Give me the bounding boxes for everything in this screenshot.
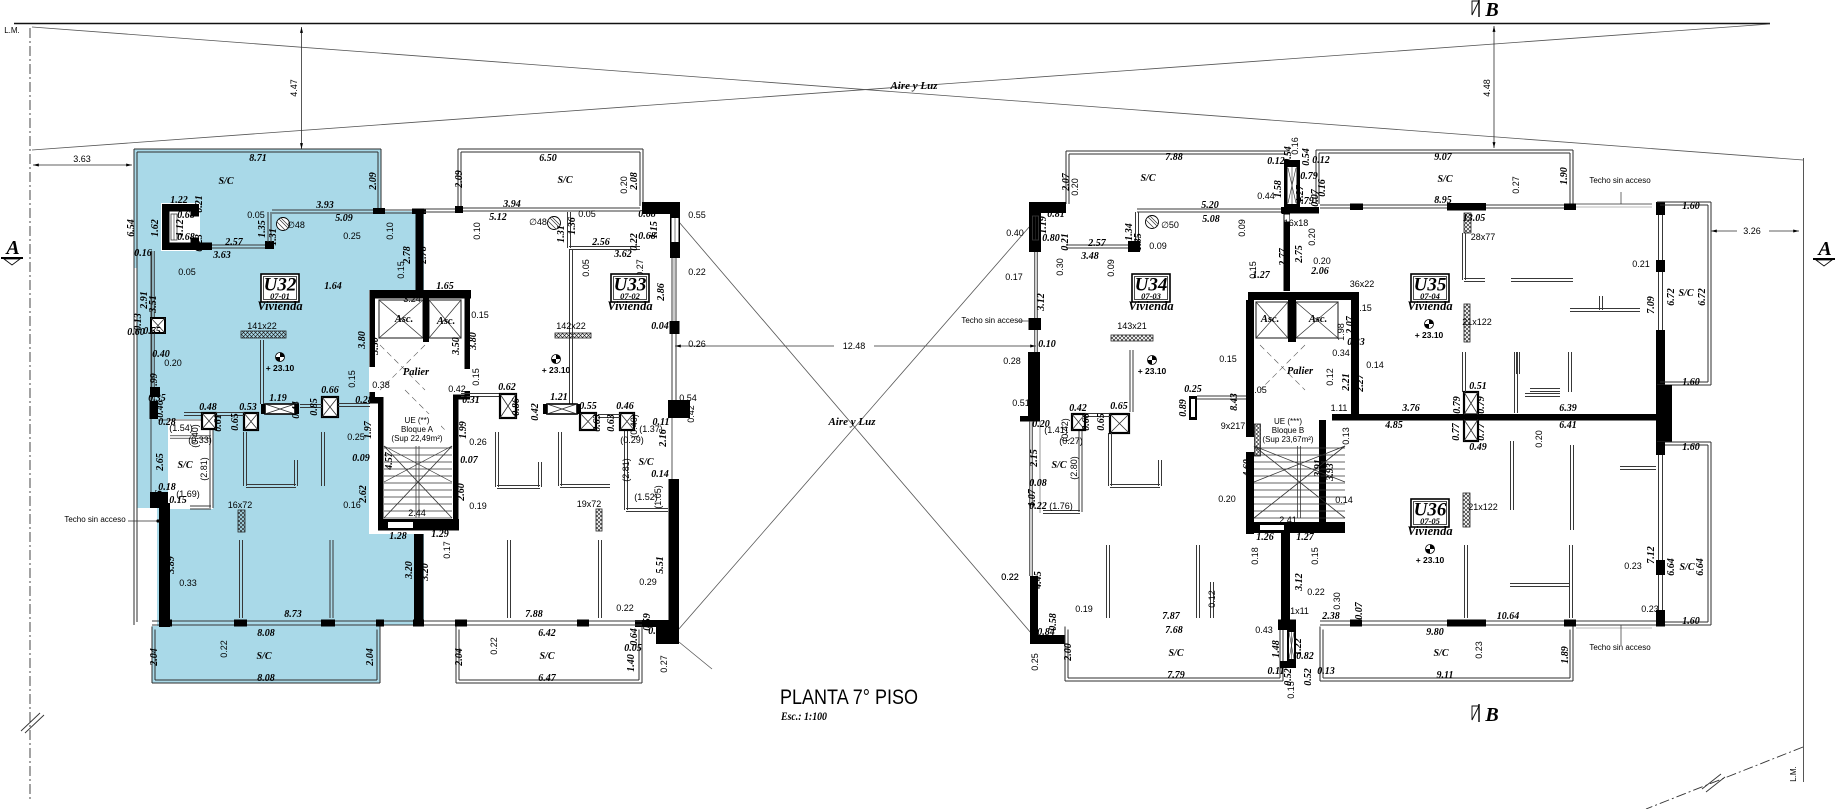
svg-text:2.75: 2.75 [1294, 245, 1305, 264]
svg-text:6.41: 6.41 [1559, 420, 1577, 431]
svg-text:1.60: 1.60 [1682, 201, 1700, 212]
svg-text:0.28: 0.28 [355, 395, 373, 406]
svg-text:L.M.: L.M. [4, 26, 20, 35]
svg-text:8.71: 8.71 [249, 153, 267, 164]
svg-text:1.64: 1.64 [324, 281, 342, 292]
svg-text:0.11: 0.11 [653, 417, 670, 428]
svg-text:1.31: 1.31 [268, 228, 279, 246]
svg-text:6.72: 6.72 [1697, 288, 1708, 306]
svg-text:(Sup 22,49m²): (Sup 22,49m²) [391, 434, 442, 443]
svg-text:+ 23.10: + 23.10 [1416, 555, 1445, 565]
svg-text:2.04: 2.04 [365, 648, 376, 667]
svg-text:0.66: 0.66 [1081, 413, 1092, 431]
svg-text:0.49: 0.49 [1469, 442, 1487, 453]
svg-text:1.27: 1.27 [1296, 532, 1315, 543]
svg-text:S/C: S/C [1679, 562, 1694, 573]
svg-text:0.23: 0.23 [1474, 641, 1484, 659]
svg-text:8.95: 8.95 [1434, 195, 1452, 206]
svg-text:0.15: 0.15 [1219, 354, 1237, 364]
svg-text:13.05: 13.05 [1463, 213, 1486, 224]
svg-text:Palier: Palier [403, 367, 430, 378]
svg-text:2.07: 2.07 [1345, 315, 1356, 335]
svg-text:0.15: 0.15 [396, 261, 406, 279]
svg-text:3.12: 3.12 [1294, 573, 1305, 592]
svg-text:S/C: S/C [539, 651, 554, 662]
svg-text:0.22: 0.22 [219, 640, 229, 658]
svg-text:8.08: 8.08 [257, 628, 275, 639]
svg-text:0.25: 0.25 [347, 432, 365, 442]
svg-text:Aire y Luz: Aire y Luz [889, 80, 938, 92]
svg-text:0.17: 0.17 [442, 541, 452, 559]
svg-text:6.47: 6.47 [538, 673, 557, 684]
svg-text:2.44: 2.44 [408, 508, 426, 518]
svg-text:0.65: 0.65 [1110, 401, 1128, 412]
svg-text:0.20: 0.20 [1313, 256, 1331, 266]
svg-text:2.00: 2.00 [1063, 643, 1074, 662]
svg-text:3.76: 3.76 [1401, 403, 1420, 414]
svg-text:0.25: 0.25 [1030, 653, 1040, 671]
svg-text:3.63: 3.63 [212, 250, 231, 261]
svg-text:0.42: 0.42 [686, 405, 696, 423]
svg-text:3.20: 3.20 [404, 561, 415, 580]
svg-text:0.28: 0.28 [1003, 356, 1021, 366]
svg-text:0.09: 0.09 [1106, 259, 1116, 277]
svg-text:0.56: 0.56 [154, 490, 165, 508]
svg-text:0.12: 0.12 [1312, 155, 1330, 166]
svg-text:6.64: 6.64 [1695, 558, 1706, 576]
svg-text:8.08: 8.08 [257, 673, 275, 684]
svg-text:2.27: 2.27 [1355, 373, 1366, 393]
svg-text:9.80: 9.80 [1426, 627, 1444, 638]
svg-text:0.33: 0.33 [1347, 337, 1365, 348]
svg-text:0.14: 0.14 [1366, 360, 1384, 370]
svg-text:1.35: 1.35 [257, 220, 268, 238]
svg-text:(1.76): (1.76) [1049, 501, 1073, 511]
svg-text:0.55: 0.55 [143, 326, 161, 337]
svg-text:+ 23.10: + 23.10 [1138, 366, 1167, 376]
svg-text:0.51: 0.51 [1469, 381, 1487, 392]
svg-text:1.62: 1.62 [150, 219, 161, 237]
svg-text:0.15: 0.15 [347, 370, 357, 388]
svg-text:2.41: 2.41 [1279, 515, 1297, 525]
svg-text:(2.81): (2.81) [621, 458, 631, 482]
svg-text:0.05: 0.05 [578, 209, 596, 219]
svg-text:8.43: 8.43 [1229, 393, 1240, 411]
svg-text:+ 23.10: + 23.10 [542, 365, 571, 375]
svg-text:0.79: 0.79 [1452, 396, 1463, 414]
svg-text:Vivienda: Vivienda [1128, 299, 1173, 313]
svg-text:16x18: 16x18 [1284, 218, 1309, 228]
svg-text:Techo sin acceso: Techo sin acceso [961, 316, 1023, 325]
svg-text:0.42: 0.42 [1069, 403, 1087, 414]
svg-text:3.50: 3.50 [370, 337, 381, 356]
svg-text:0.08: 0.08 [1029, 478, 1047, 489]
svg-text:0.26: 0.26 [688, 339, 706, 349]
svg-text:0.12: 0.12 [1325, 368, 1335, 386]
svg-text:0.51: 0.51 [1012, 398, 1030, 408]
svg-text:0.42: 0.42 [530, 403, 541, 421]
svg-text:3.93: 3.93 [1325, 463, 1336, 482]
svg-text:19x72: 19x72 [577, 499, 602, 509]
svg-text:S/C: S/C [1168, 648, 1183, 659]
svg-text:3.94: 3.94 [502, 199, 521, 210]
svg-text:2.21: 2.21 [1341, 373, 1352, 392]
svg-text:0.20: 0.20 [164, 358, 182, 368]
svg-text:2.09: 2.09 [368, 172, 379, 191]
svg-text:0.25: 0.25 [1184, 384, 1202, 395]
svg-text:9.07: 9.07 [1434, 152, 1453, 163]
svg-text:S/C: S/C [218, 176, 233, 187]
svg-text:3.24: 3.24 [403, 294, 421, 304]
svg-text:A: A [4, 237, 19, 259]
svg-text:0.22: 0.22 [1307, 587, 1325, 597]
svg-text:0.05: 0.05 [247, 210, 265, 220]
svg-text:Asc.: Asc. [1260, 314, 1279, 325]
svg-text:2.16: 2.16 [658, 429, 669, 448]
svg-text:0.20: 0.20 [1307, 228, 1317, 246]
svg-text:2.15: 2.15 [1029, 449, 1040, 468]
svg-text:(1.05): (1.05) [653, 485, 663, 509]
svg-text:1.21: 1.21 [550, 392, 568, 403]
svg-text:0.27: 0.27 [659, 655, 669, 673]
svg-text:7.88: 7.88 [1165, 152, 1183, 163]
svg-text:A: A [1816, 238, 1831, 260]
svg-text:1.29: 1.29 [431, 529, 449, 540]
svg-text:1.31: 1.31 [556, 225, 567, 243]
svg-text:0.63: 0.63 [606, 414, 617, 432]
svg-text:0.59: 0.59 [642, 613, 653, 631]
svg-text:0.77: 0.77 [1451, 422, 1462, 441]
svg-text:0.15: 0.15 [471, 310, 489, 320]
svg-text:0.77: 0.77 [1476, 422, 1487, 441]
svg-text:4.47: 4.47 [289, 79, 299, 97]
svg-text:0.16: 0.16 [1317, 179, 1328, 197]
svg-text:0.20: 0.20 [619, 176, 629, 194]
svg-text:0.65: 0.65 [1096, 413, 1107, 431]
svg-text:2.56: 2.56 [591, 237, 610, 248]
svg-text:21x122: 21x122 [1462, 317, 1492, 327]
svg-text:0.79: 0.79 [1300, 171, 1318, 182]
svg-text:0.05: 0.05 [1249, 385, 1267, 395]
svg-text:Techo sin acceso: Techo sin acceso [1589, 643, 1651, 652]
svg-text:2.65: 2.65 [155, 453, 166, 472]
svg-text:1.11: 1.11 [1331, 403, 1348, 413]
svg-text:0.43: 0.43 [1255, 625, 1273, 635]
svg-text:S/C: S/C [1140, 173, 1155, 184]
svg-text:2.78: 2.78 [418, 246, 429, 265]
svg-text:0.61: 0.61 [213, 414, 224, 432]
svg-text:0.17: 0.17 [1005, 272, 1023, 282]
svg-text:0.65: 0.65 [230, 413, 241, 431]
svg-text:0.64: 0.64 [629, 628, 640, 646]
svg-text:0.07: 0.07 [1354, 601, 1365, 620]
svg-text:0.68: 0.68 [638, 209, 656, 220]
svg-text:7.09: 7.09 [1646, 296, 1657, 314]
svg-text:0.27: 0.27 [1511, 176, 1521, 194]
svg-text:1.22: 1.22 [170, 195, 188, 206]
svg-text:(0.27): (0.27) [1059, 436, 1083, 446]
svg-text:0.15: 0.15 [471, 368, 481, 386]
svg-text:4.57: 4.57 [384, 451, 395, 471]
svg-text:0.29: 0.29 [639, 577, 657, 587]
svg-text:1.99: 1.99 [149, 373, 160, 391]
svg-text:0.20: 0.20 [1070, 178, 1080, 196]
svg-text:0.85: 0.85 [309, 398, 320, 416]
svg-text:4.60: 4.60 [1242, 459, 1253, 478]
svg-text:Vivienda: Vivienda [607, 299, 652, 313]
svg-text:0.14: 0.14 [1335, 495, 1353, 505]
svg-text:0.82: 0.82 [1296, 651, 1314, 662]
svg-text:Vivienda: Vivienda [1407, 299, 1452, 313]
svg-text:0.23: 0.23 [1624, 561, 1642, 571]
svg-text:0.16: 0.16 [134, 248, 152, 259]
svg-text:3.17: 3.17 [1280, 572, 1291, 592]
svg-text:0.15: 0.15 [1310, 547, 1320, 565]
svg-text:Vivienda: Vivienda [1407, 524, 1452, 538]
svg-text:7.68: 7.68 [1165, 625, 1183, 636]
svg-text:UE (***): UE (***) [1274, 417, 1302, 426]
svg-text:S/C: S/C [256, 651, 271, 662]
svg-text:12.48: 12.48 [843, 341, 866, 351]
svg-text:0.15: 0.15 [169, 495, 187, 506]
svg-text:0.38: 0.38 [372, 380, 390, 390]
svg-text:1.35: 1.35 [1133, 233, 1144, 251]
svg-text:0.89: 0.89 [1178, 399, 1189, 417]
svg-text:0.19: 0.19 [1075, 604, 1093, 614]
svg-text:0.26: 0.26 [469, 437, 487, 447]
svg-text:0.54: 0.54 [679, 393, 697, 403]
svg-text:0.23: 0.23 [194, 234, 205, 252]
svg-text:3.89: 3.89 [166, 556, 177, 575]
svg-text:6.72: 6.72 [1666, 288, 1677, 306]
svg-text:0.13: 0.13 [1317, 666, 1335, 677]
svg-text:0.10: 0.10 [385, 222, 395, 240]
svg-text:1.27: 1.27 [1252, 270, 1271, 281]
svg-text:0.22: 0.22 [1001, 572, 1019, 582]
svg-text:0.04: 0.04 [651, 321, 669, 332]
svg-text:PLANTA 7° PISO: PLANTA 7° PISO [780, 685, 918, 709]
svg-text:0.18: 0.18 [1250, 547, 1260, 565]
svg-text:Bloque A: Bloque A [401, 425, 434, 434]
svg-text:0.05: 0.05 [581, 259, 591, 277]
svg-text:0.30: 0.30 [1332, 592, 1342, 610]
svg-text:0.46: 0.46 [155, 400, 166, 418]
svg-text:1.90: 1.90 [1559, 167, 1570, 185]
svg-text:2.60: 2.60 [456, 483, 467, 502]
svg-text:0.53: 0.53 [239, 402, 257, 413]
svg-text:(0.33): (0.33) [188, 435, 212, 445]
svg-text:0.33: 0.33 [179, 578, 197, 588]
svg-text:(2.81): (2.81) [199, 457, 209, 481]
svg-text:2.86: 2.86 [656, 283, 667, 302]
svg-text:16x72: 16x72 [228, 500, 253, 510]
svg-text:3.20: 3.20 [420, 563, 431, 582]
svg-text:0.16: 0.16 [343, 500, 361, 510]
svg-text:S/C: S/C [638, 457, 653, 468]
svg-text:1.60: 1.60 [1682, 616, 1700, 627]
svg-text:1.58: 1.58 [1273, 180, 1284, 198]
svg-text:6.50: 6.50 [539, 153, 557, 164]
svg-text:5.51: 5.51 [655, 556, 666, 574]
svg-text:0.23: 0.23 [1641, 604, 1659, 614]
svg-text:141x22: 141x22 [247, 321, 277, 331]
svg-text:4.45: 4.45 [1033, 571, 1044, 590]
svg-text:0.34: 0.34 [1332, 348, 1350, 358]
svg-text:1.89: 1.89 [1560, 646, 1571, 664]
svg-text:3.50: 3.50 [451, 337, 462, 356]
svg-text:0.68: 0.68 [177, 232, 195, 243]
svg-text:0.44: 0.44 [291, 401, 302, 419]
svg-text:8.73: 8.73 [284, 609, 302, 620]
svg-text:7.79: 7.79 [1167, 670, 1185, 681]
svg-text:S/C: S/C [1433, 648, 1448, 659]
svg-text:1.98: 1.98 [1336, 323, 1346, 341]
svg-text:0.10: 0.10 [1038, 339, 1056, 350]
svg-text:(Sup 23,67m²): (Sup 23,67m²) [1262, 435, 1313, 444]
svg-text:Techo sin acceso: Techo sin acceso [1589, 176, 1651, 185]
svg-text:28x77: 28x77 [1471, 232, 1496, 242]
svg-text:0.55: 0.55 [579, 401, 597, 412]
svg-text:S/C: S/C [1437, 174, 1452, 185]
svg-text:S/C: S/C [1051, 460, 1066, 471]
svg-text:2.06: 2.06 [1310, 266, 1329, 277]
svg-text:0.16: 0.16 [1290, 137, 1300, 155]
svg-text:0.40: 0.40 [1006, 228, 1024, 238]
svg-text:0.66: 0.66 [321, 385, 339, 396]
svg-text:0.62: 0.62 [498, 382, 516, 393]
svg-text:0.09: 0.09 [352, 453, 370, 464]
svg-text:0.79: 0.79 [1476, 396, 1487, 414]
svg-text:0.63: 0.63 [592, 414, 603, 432]
svg-text:∅48: ∅48 [529, 217, 547, 227]
svg-text:Asc.: Asc. [436, 316, 455, 327]
svg-text:0.60: 0.60 [127, 327, 145, 338]
svg-text:3.12: 3.12 [1036, 293, 1047, 312]
svg-text:3.51: 3.51 [148, 295, 159, 314]
svg-text:3.91: 3.91 [1313, 459, 1324, 478]
svg-text:1.48: 1.48 [1271, 640, 1282, 658]
svg-text:∅48: ∅48 [287, 220, 305, 230]
svg-text:5.12: 5.12 [489, 212, 507, 223]
svg-text:0.07: 0.07 [460, 455, 479, 466]
svg-text:0.46: 0.46 [616, 401, 634, 412]
svg-text:3.80: 3.80 [468, 332, 479, 351]
svg-text:142x22: 142x22 [556, 321, 586, 331]
svg-text:0.52: 0.52 [1303, 668, 1314, 686]
svg-text:3.26: 3.26 [1743, 226, 1761, 236]
svg-text:0.09: 0.09 [1149, 241, 1167, 251]
svg-text:10.64: 10.64 [1497, 611, 1520, 622]
svg-text:0.21: 0.21 [1632, 259, 1650, 269]
svg-text:3.93: 3.93 [315, 200, 334, 211]
svg-text:0.14: 0.14 [651, 469, 669, 480]
svg-text:1.60: 1.60 [1682, 442, 1700, 453]
svg-text:0.54: 0.54 [1301, 148, 1312, 166]
svg-text:Bloque B: Bloque B [1272, 426, 1304, 435]
svg-text:9.11: 9.11 [1437, 670, 1454, 681]
svg-text:1.65: 1.65 [436, 281, 454, 292]
svg-text:2.38: 2.38 [1321, 611, 1340, 622]
svg-text:9x217: 9x217 [1221, 421, 1246, 431]
svg-text:0.22: 0.22 [688, 267, 706, 277]
svg-text:0.11: 0.11 [1268, 666, 1285, 677]
svg-text:1.19: 1.19 [269, 393, 287, 404]
svg-text:0.48: 0.48 [199, 402, 217, 413]
svg-text:3.48: 3.48 [1080, 251, 1099, 262]
svg-text:1.28: 1.28 [389, 531, 407, 542]
svg-text:Aire y Luz: Aire y Luz [827, 416, 876, 428]
svg-text:0.30: 0.30 [1055, 258, 1065, 276]
svg-text:0.21: 0.21 [194, 195, 205, 213]
svg-text:5.09: 5.09 [335, 213, 353, 224]
svg-text:0.55: 0.55 [688, 210, 706, 220]
svg-text:1.26: 1.26 [1256, 532, 1274, 543]
svg-text:UE (**): UE (**) [405, 416, 430, 425]
svg-text:0.19: 0.19 [469, 501, 487, 511]
svg-text:Vivienda: Vivienda [257, 299, 302, 313]
svg-text:0.10: 0.10 [472, 222, 482, 240]
svg-text:Asc.: Asc. [394, 314, 413, 325]
svg-text:36x22: 36x22 [1350, 279, 1375, 289]
svg-text:3.80: 3.80 [357, 331, 368, 350]
svg-text:0.20: 0.20 [1534, 430, 1544, 448]
svg-text:0.68: 0.68 [638, 231, 656, 242]
svg-text:S/C: S/C [1678, 288, 1693, 299]
svg-text:2.08: 2.08 [629, 172, 640, 191]
svg-text:2.04: 2.04 [454, 648, 465, 667]
svg-text:2.57: 2.57 [224, 237, 244, 248]
svg-text:L.M.: L.M. [1789, 766, 1798, 782]
svg-text:0.12: 0.12 [1207, 590, 1217, 608]
svg-text:0.31: 0.31 [462, 395, 480, 406]
svg-text:∅50: ∅50 [1161, 220, 1179, 230]
svg-text:(0.29): (0.29) [620, 435, 644, 445]
svg-text:4.48: 4.48 [1482, 79, 1492, 97]
svg-text:5.20: 5.20 [1201, 200, 1219, 211]
svg-text:1.99: 1.99 [458, 421, 469, 439]
svg-text:Asc.: Asc. [1308, 314, 1327, 325]
svg-text:21x11: 21x11 [1285, 606, 1309, 616]
svg-text:S/C: S/C [177, 460, 192, 471]
svg-text:1.60: 1.60 [1682, 377, 1700, 388]
svg-text:+ 23.10: + 23.10 [266, 363, 295, 373]
svg-text:7.87: 7.87 [1162, 611, 1181, 622]
svg-text:B: B [1484, 704, 1498, 726]
svg-text:0.15: 0.15 [1354, 303, 1372, 313]
svg-text:0.21: 0.21 [1060, 233, 1071, 251]
svg-text:(2.80): (2.80) [1069, 456, 1079, 480]
svg-text:0.42: 0.42 [448, 384, 466, 394]
svg-text:0.80: 0.80 [1042, 233, 1060, 244]
svg-text:0.22: 0.22 [1029, 501, 1047, 512]
svg-text:B: B [1484, 0, 1498, 21]
svg-text:6.39: 6.39 [1559, 403, 1577, 414]
svg-text:Techo sin acceso: Techo sin acceso [64, 515, 126, 524]
svg-text:0.22: 0.22 [616, 603, 634, 613]
svg-text:0.13: 0.13 [1341, 427, 1351, 445]
svg-text:Esc.: 1:100: Esc.: 1:100 [780, 711, 827, 723]
svg-text:1.36: 1.36 [567, 217, 578, 235]
svg-text:1.19: 1.19 [1038, 216, 1049, 234]
svg-text:2.09: 2.09 [454, 170, 465, 189]
svg-text:0.20: 0.20 [1218, 494, 1236, 504]
svg-text:7.12: 7.12 [1646, 546, 1657, 564]
svg-text:4.85: 4.85 [1384, 420, 1403, 431]
svg-text:0.81: 0.81 [1047, 209, 1065, 220]
svg-text:0.58: 0.58 [1048, 613, 1059, 631]
svg-text:0.15: 0.15 [1286, 681, 1296, 699]
svg-text:2.77: 2.77 [1278, 247, 1289, 267]
